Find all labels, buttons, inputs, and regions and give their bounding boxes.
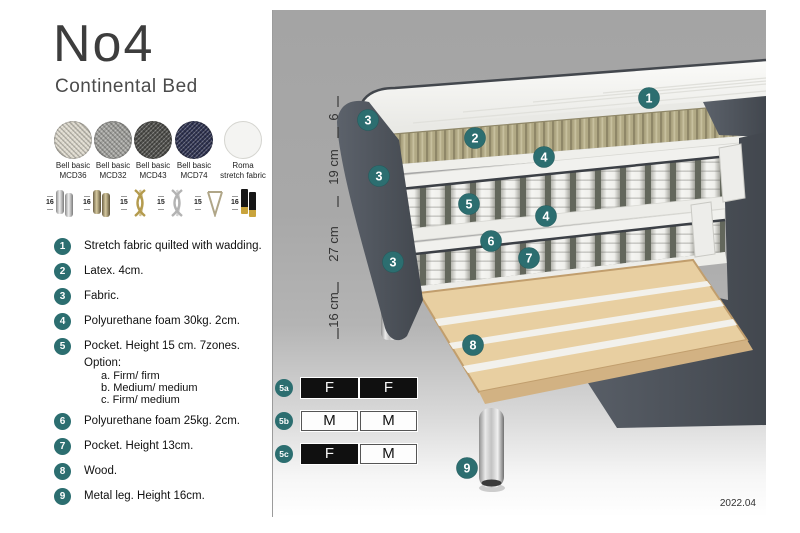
svg-text:7: 7 xyxy=(526,252,533,266)
callout-3b: 3 xyxy=(369,166,390,187)
leg-height: 15 xyxy=(120,199,128,207)
leg-option: 16 xyxy=(83,186,110,220)
svg-text:9: 9 xyxy=(464,462,471,476)
fabric-swatch-label: Romastretch fabric xyxy=(219,161,267,180)
callout-9: 9 xyxy=(457,458,478,479)
firmness-row-5c: 5c F M xyxy=(275,443,418,465)
leg-option: 15 xyxy=(194,186,226,220)
item-text: Latex. 4cm. xyxy=(84,263,143,280)
item-text: Pocket. Height 13cm. xyxy=(84,438,193,455)
fabric-swatch xyxy=(134,121,172,159)
item-number-badge: 2 xyxy=(54,263,71,280)
firmness-table: F F xyxy=(300,377,418,399)
leg-hairpin-icon xyxy=(204,189,226,217)
dimension-labels: 6 19 cm 27 cm 16 cm xyxy=(326,113,341,327)
fabric-swatch-label: Bell basicMCD74 xyxy=(170,161,218,180)
item-number-badge: 3 xyxy=(54,288,71,305)
firmness-cell: M xyxy=(301,411,358,431)
item-number-badge: 1 xyxy=(54,238,71,255)
dim-middle-mattress: 19 cm xyxy=(326,149,341,184)
item-text: Fabric. xyxy=(84,288,119,305)
leg-twisted-silver-icon xyxy=(167,189,187,217)
firmness-row-5a: 5a F F xyxy=(275,377,418,399)
fabric-swatch xyxy=(94,121,132,159)
item-text: Stretch fabric quilted with wadding. xyxy=(84,238,262,255)
callout-6: 6 xyxy=(481,231,502,252)
list-item: 4 Polyurethane foam 30kg. 2cm. xyxy=(54,313,279,330)
item-number-badge: 9 xyxy=(54,488,71,505)
item-text: Wood. xyxy=(84,463,117,480)
item-text: Pocket. Height 15 cm. 7zones. Option: xyxy=(84,338,279,372)
illustration-panel: 6 19 cm 27 cm 16 cm 1 2 3 3 3 4 4 5 6 7 … xyxy=(272,10,766,517)
option-b: b. Medium/ medium xyxy=(101,382,279,394)
list-item: 3 Fabric. xyxy=(54,288,279,305)
leg-option: 16 xyxy=(231,186,256,220)
leg-cylinder-bronze-icon xyxy=(93,190,110,217)
leg-height: 16 xyxy=(46,199,54,207)
leg-cylinder-silver-icon xyxy=(56,190,73,217)
leg-option: 16 xyxy=(46,186,73,220)
item-text: Metal leg. Height 16cm. xyxy=(84,488,205,505)
option-c: c. Firm/ medium xyxy=(101,394,279,406)
item-number-badge: 7 xyxy=(54,438,71,455)
bed-cutaway-illustration: 6 19 cm 27 cm 16 cm 1 2 3 3 3 4 4 5 6 7 … xyxy=(273,10,767,517)
list-item: 5 Pocket. Height 15 cm. 7zones. Option: xyxy=(54,338,279,372)
item-text: Polyurethane foam 25kg. 2cm. xyxy=(84,413,240,430)
dim-legs: 16 cm xyxy=(326,292,341,327)
svg-text:1: 1 xyxy=(646,92,653,106)
lower-corner-post xyxy=(691,202,715,257)
dim-lower-box: 27 cm xyxy=(326,226,341,261)
list-item: 6 Polyurethane foam 25kg. 2cm. xyxy=(54,413,279,430)
page-subtitle: Continental Bed xyxy=(55,76,198,98)
list-item: 7 Pocket. Height 13cm. xyxy=(54,438,279,455)
fabric-swatch xyxy=(224,121,262,159)
dim-top-pad: 6 xyxy=(326,113,341,120)
mattress-corner-post xyxy=(719,144,745,202)
item-number-badge: 4 xyxy=(54,313,71,330)
leg-twisted-gold-icon xyxy=(130,189,150,217)
firmness-cell: F xyxy=(360,378,417,398)
item-number-badge: 6 xyxy=(54,413,71,430)
item-number-badge: 8 xyxy=(54,463,71,480)
callout-7: 7 xyxy=(519,248,540,269)
firmness-cell: F xyxy=(301,444,358,464)
firmness-cell: M xyxy=(360,411,417,431)
svg-text:6: 6 xyxy=(488,235,495,249)
callout-5: 5 xyxy=(459,194,480,215)
leg-option: 15 xyxy=(120,186,150,220)
product-sheet: No4 Continental Bed Bell basicMCD36 Bell… xyxy=(0,0,800,533)
callout-3a: 3 xyxy=(358,110,379,131)
callout-4b: 4 xyxy=(536,206,557,227)
svg-text:4: 4 xyxy=(541,151,548,165)
pocket-options: a. Firm/ firm b. Medium/ medium c. Firm/… xyxy=(101,370,279,407)
callout-4a: 4 xyxy=(534,147,555,168)
svg-text:4: 4 xyxy=(543,210,550,224)
leg-height: 15 xyxy=(194,199,202,207)
version-label: 2022.04 xyxy=(720,498,756,509)
firmness-badge: 5b xyxy=(275,412,293,430)
svg-text:2: 2 xyxy=(472,132,479,146)
fabric-swatch xyxy=(54,121,92,159)
leg-height: 15 xyxy=(157,199,165,207)
firmness-row-5b: 5b M M xyxy=(275,410,418,432)
metal-leg-right xyxy=(479,408,505,492)
leg-height: 16 xyxy=(231,199,239,207)
callout-1: 1 xyxy=(639,88,660,109)
svg-text:8: 8 xyxy=(470,339,477,353)
list-item: 9 Metal leg. Height 16cm. xyxy=(54,488,279,505)
firmness-table: F M xyxy=(300,443,418,465)
leg-black-gold-icon xyxy=(241,189,256,217)
svg-text:3: 3 xyxy=(376,170,383,184)
list-item: 8 Wood. xyxy=(54,463,279,480)
list-item: 2 Latex. 4cm. xyxy=(54,263,279,280)
fabric-swatch xyxy=(175,121,213,159)
leg-height: 16 xyxy=(83,199,91,207)
page-title: No4 xyxy=(53,14,154,74)
firmness-badge: 5a xyxy=(275,379,293,397)
firmness-cell: M xyxy=(360,444,417,464)
callout-3c: 3 xyxy=(383,252,404,273)
svg-text:3: 3 xyxy=(365,114,372,128)
callout-2: 2 xyxy=(465,128,486,149)
svg-text:3: 3 xyxy=(390,256,397,270)
firmness-cell: F xyxy=(301,378,358,398)
leg-option: 15 xyxy=(157,186,187,220)
item-number-badge: 5 xyxy=(54,338,71,355)
svg-text:5: 5 xyxy=(466,198,473,212)
firmness-badge: 5c xyxy=(275,445,293,463)
firmness-table: M M xyxy=(300,410,418,432)
list-item: 1 Stretch fabric quilted with wadding. xyxy=(54,238,279,255)
feature-list: 1 Stretch fabric quilted with wadding. 2… xyxy=(54,238,279,513)
item-text: Polyurethane foam 30kg. 2cm. xyxy=(84,313,240,330)
callout-8: 8 xyxy=(463,335,484,356)
